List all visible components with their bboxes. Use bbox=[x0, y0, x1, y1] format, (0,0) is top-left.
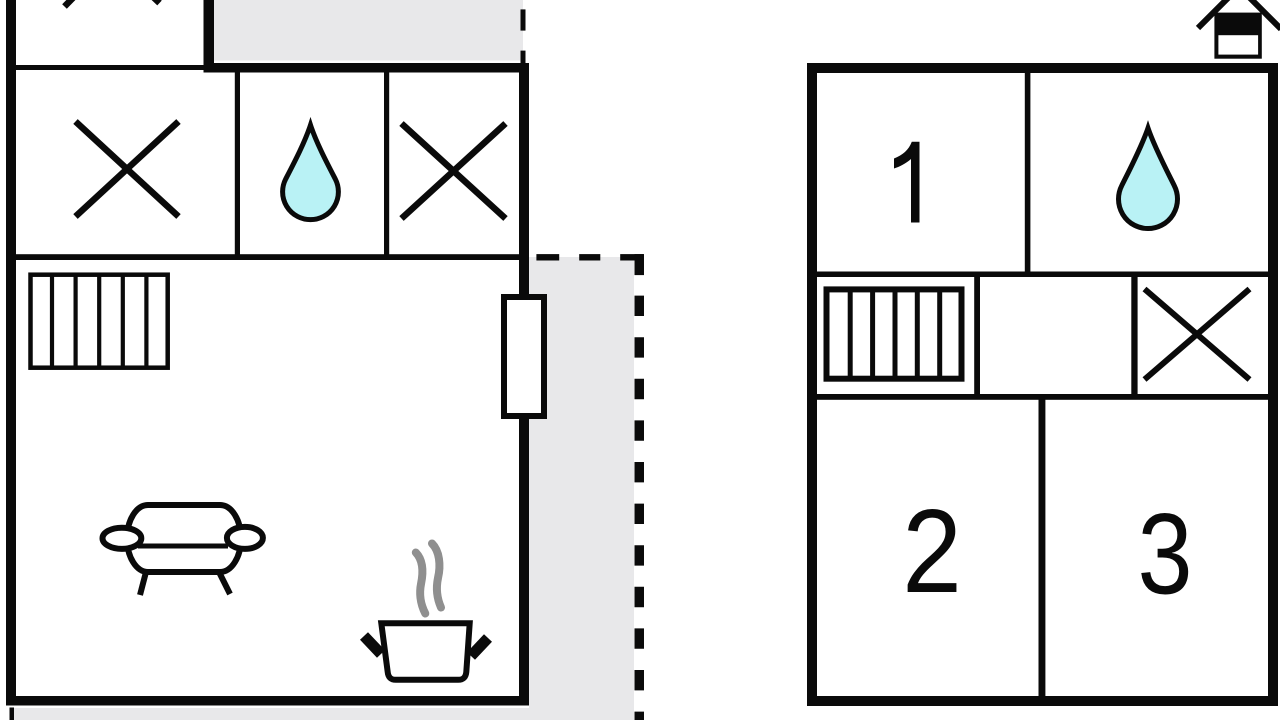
svg-text:2: 2 bbox=[902, 485, 962, 617]
svg-text:3: 3 bbox=[1137, 489, 1192, 618]
